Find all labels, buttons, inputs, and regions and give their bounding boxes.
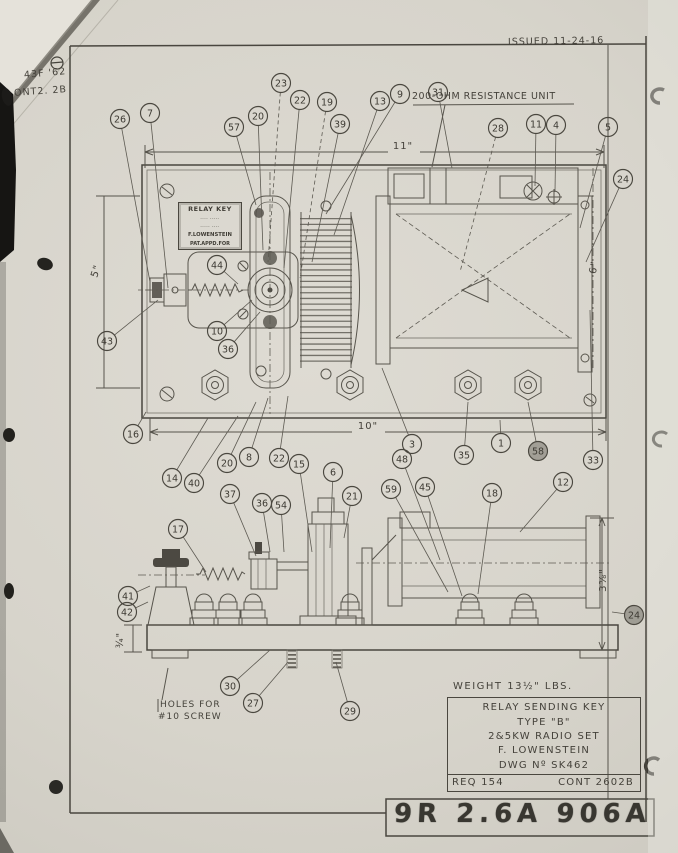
callout-number: 26 bbox=[114, 114, 126, 125]
holes-note-line1: HOLES FOR bbox=[160, 700, 221, 710]
callout-number: 22 bbox=[294, 95, 306, 106]
callout-number: 37 bbox=[224, 489, 236, 500]
callout-number: 48 bbox=[396, 454, 408, 465]
callout-number: 29 bbox=[344, 706, 356, 717]
leader-line bbox=[535, 133, 536, 186]
leader-line bbox=[312, 133, 338, 262]
leader-line bbox=[282, 514, 284, 552]
contact-comb bbox=[301, 201, 360, 379]
callout-number: 59 bbox=[385, 484, 397, 495]
leader-line bbox=[258, 125, 263, 250]
callout-number: 41 bbox=[122, 591, 134, 602]
issue-note: ISSUED 11-24-16 bbox=[508, 35, 604, 48]
leader-line bbox=[586, 188, 619, 262]
callout-number: 36 bbox=[222, 344, 234, 355]
callout-number: 27 bbox=[247, 698, 259, 709]
callout-number: 57 bbox=[228, 122, 240, 133]
title-block-row3: 2&5KW RADIO SET bbox=[448, 731, 640, 742]
title-block-row4: F. LOWENSTEIN bbox=[448, 745, 640, 756]
callout-number: 30 bbox=[224, 681, 236, 692]
leader-line bbox=[528, 402, 536, 442]
leader-line bbox=[460, 137, 496, 272]
title-block: RELAY SENDING KEY TYPE "B" 2&5KW RADIO S… bbox=[447, 697, 641, 792]
holes-note-line2: #10 SCREW bbox=[158, 712, 222, 722]
callout-number: 11 bbox=[530, 119, 542, 130]
callout-number: 54 bbox=[275, 500, 287, 511]
weight-label: WEIGHT 13½" LBS. bbox=[453, 681, 573, 692]
nameplate-row: ‐‐‐‐‐ ‐‐‐‐ bbox=[180, 224, 240, 229]
callout-number: 43 bbox=[101, 336, 113, 347]
resistance-label-leader bbox=[413, 104, 574, 167]
callout-number: 12 bbox=[557, 477, 569, 488]
callout-number: 20 bbox=[221, 458, 233, 469]
leader-line bbox=[237, 136, 256, 205]
leader-line bbox=[177, 418, 208, 470]
callout-number: 39 bbox=[334, 119, 346, 130]
callout-balloons: 2675720232219391393128114524444310361614… bbox=[98, 74, 644, 721]
resistance-unit bbox=[376, 168, 592, 372]
callout-number: 35 bbox=[458, 450, 470, 461]
elevation-view bbox=[124, 498, 618, 712]
callout-number: 44 bbox=[211, 260, 223, 271]
binding-posts bbox=[202, 370, 541, 400]
leader-line bbox=[114, 300, 158, 335]
callout-number: 45 bbox=[419, 482, 431, 493]
leader-line bbox=[520, 489, 557, 532]
leader-line bbox=[580, 136, 605, 228]
nameplate-maker: F.LOWENSTEIN bbox=[180, 232, 240, 238]
leader-line bbox=[500, 420, 501, 434]
resistance-unit-label: 200-OHM RESISTANCE UNIT bbox=[412, 91, 556, 102]
callout-number: 5 bbox=[605, 122, 611, 133]
leader-line bbox=[465, 402, 468, 446]
callout-number: 42 bbox=[121, 607, 133, 618]
callout-number: 19 bbox=[321, 97, 333, 108]
callout-number: 17 bbox=[172, 524, 184, 535]
callout-number: 20 bbox=[252, 111, 264, 122]
leader-line bbox=[234, 503, 256, 556]
title-block-row2: TYPE "B" bbox=[448, 717, 640, 728]
callout-number: 23 bbox=[275, 78, 287, 89]
callout-number: 4 bbox=[553, 120, 559, 131]
leader-line bbox=[344, 505, 350, 538]
callout-number: 24 bbox=[628, 610, 640, 621]
spring-side bbox=[196, 568, 245, 580]
contact-assembly bbox=[249, 542, 308, 589]
leader-line bbox=[259, 662, 288, 696]
callout-number: 33 bbox=[587, 455, 599, 466]
leader-line bbox=[264, 512, 270, 552]
leader-line bbox=[137, 586, 150, 592]
nameplate-row: ‐‐‐‐ ‐‐‐‐‐ bbox=[180, 216, 240, 221]
callout-number: 28 bbox=[492, 123, 504, 134]
callout-number: 21 bbox=[346, 491, 358, 502]
callout-number: 22 bbox=[273, 453, 285, 464]
drawing-number-stamp: 9R 2.6A 906A bbox=[393, 799, 651, 829]
dimension-label: 11" bbox=[393, 141, 413, 152]
callout-number: 8 bbox=[246, 452, 252, 463]
callout-number: 9 bbox=[397, 89, 403, 100]
leader-line bbox=[284, 109, 299, 268]
leader-line bbox=[151, 122, 168, 288]
leader-line bbox=[555, 134, 556, 192]
leader-line bbox=[440, 101, 452, 168]
dimension-label: ¾" bbox=[115, 632, 126, 648]
leader-line bbox=[136, 602, 148, 608]
title-block-row1: RELAY SENDING KEY bbox=[448, 702, 640, 713]
callout-number: 6 bbox=[330, 467, 336, 478]
blueprint-sheet: 2675720232219391393128114524444310361614… bbox=[0, 0, 678, 853]
sheet-margin bbox=[648, 0, 678, 853]
callout-number: 10 bbox=[211, 326, 223, 337]
dimension-label: 5" bbox=[89, 263, 103, 279]
callout-number: 1 bbox=[498, 438, 504, 449]
nameplate-patent: PAT.APPD.FOR bbox=[180, 241, 240, 247]
resistance-cylinder bbox=[356, 512, 612, 625]
leader-line bbox=[237, 650, 270, 680]
relay-key-nameplate: RELAY KEY ‐‐‐‐ ‐‐‐‐‐ ‐‐‐‐‐ ‐‐‐‐ F.LOWENS… bbox=[178, 202, 242, 250]
leader-line bbox=[428, 496, 462, 596]
title-block-row5: DWG Nº SK462 bbox=[448, 760, 640, 771]
leader-line bbox=[300, 473, 312, 552]
callout-number: 40 bbox=[188, 478, 200, 489]
callout-number: 18 bbox=[486, 488, 498, 499]
leader-line bbox=[224, 271, 238, 284]
title-block-cont: CONT 2602B bbox=[558, 777, 634, 788]
leader-line bbox=[280, 396, 288, 449]
callout-number: 7 bbox=[147, 108, 153, 119]
callout-number: 36 bbox=[256, 498, 268, 509]
title-block-req: REQ 154 bbox=[452, 777, 504, 788]
callout-number: 24 bbox=[617, 174, 629, 185]
callout-number: 14 bbox=[166, 473, 178, 484]
callout-number: 13 bbox=[374, 96, 386, 107]
nameplate-title: RELAY KEY bbox=[180, 205, 240, 213]
dimension-label: 3⅝" bbox=[598, 568, 609, 592]
leader-line bbox=[478, 502, 491, 594]
callout-number: 15 bbox=[293, 459, 305, 470]
leader-line bbox=[612, 612, 625, 614]
dimension-label: 10" bbox=[358, 421, 378, 432]
leader-line bbox=[382, 368, 409, 435]
callout-number: 3 bbox=[409, 439, 415, 450]
callout-number: 58 bbox=[532, 446, 544, 457]
callout-number: 16 bbox=[127, 429, 139, 440]
dimension-label: 6" bbox=[588, 260, 601, 275]
